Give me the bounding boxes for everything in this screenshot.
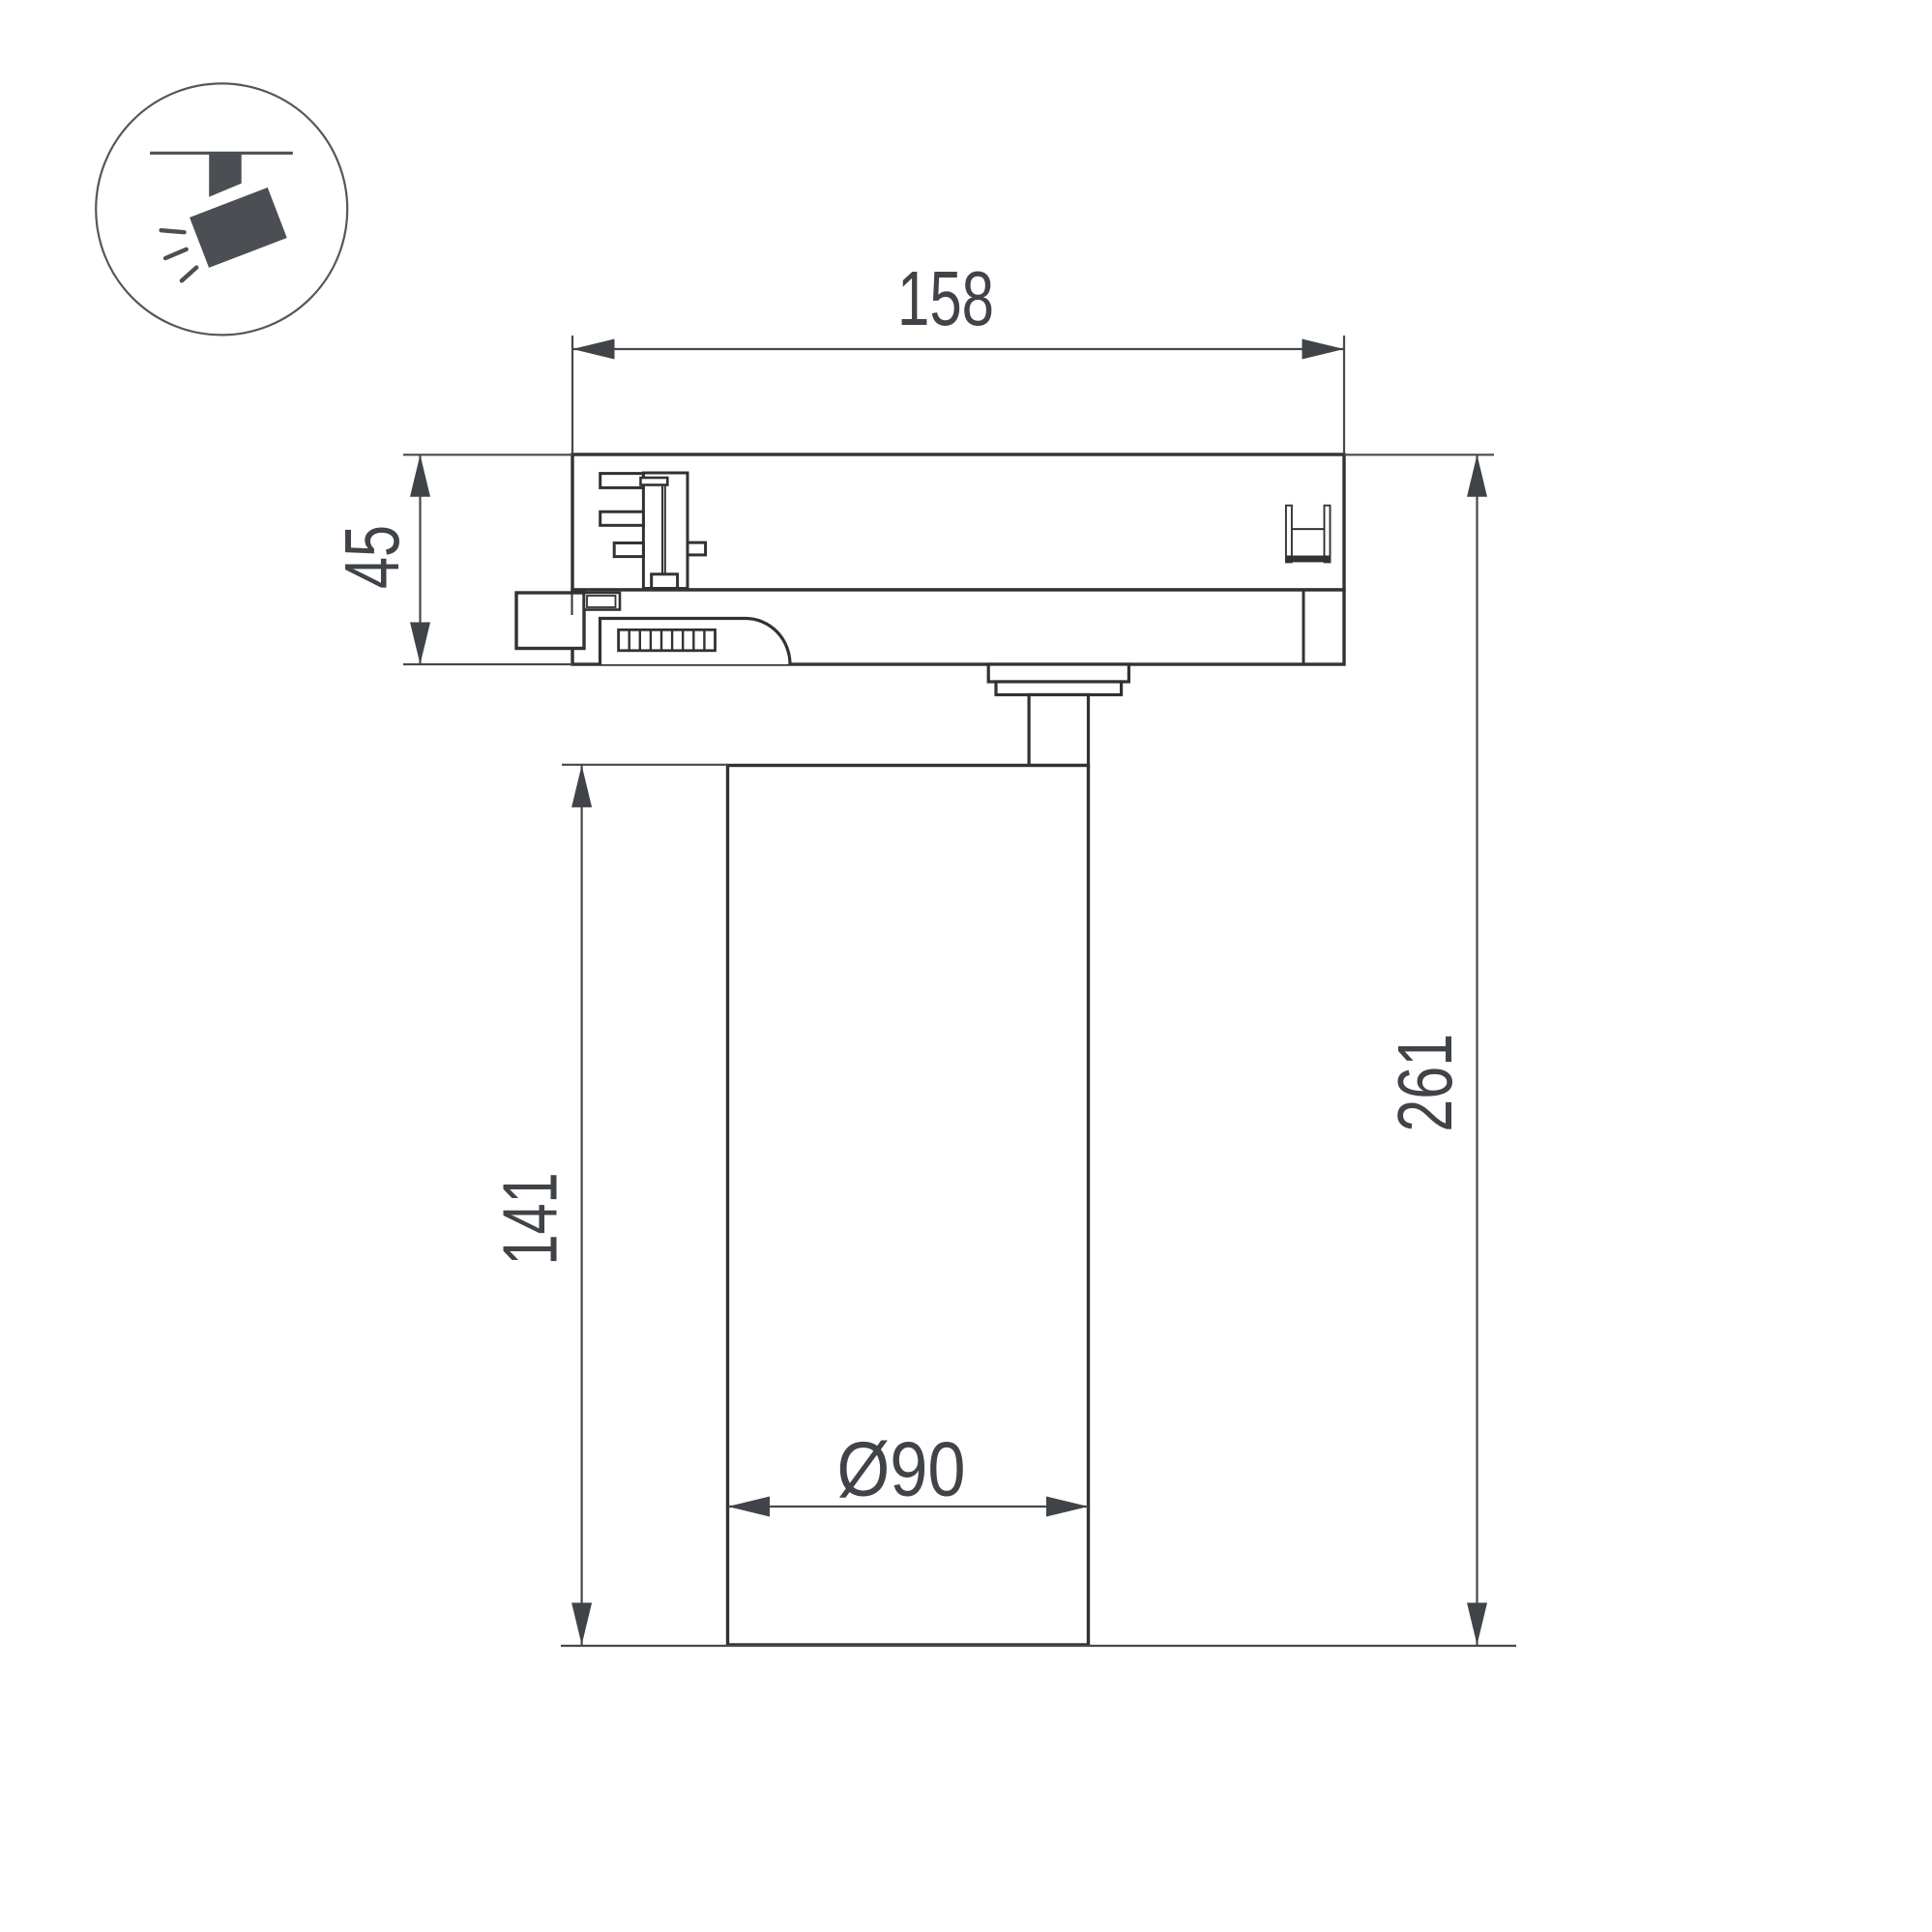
svg-text:141: 141	[487, 1173, 573, 1266]
svg-text:158: 158	[897, 255, 994, 341]
svg-text:Ø90: Ø90	[837, 1426, 966, 1512]
svg-text:45: 45	[329, 525, 415, 589]
svg-text:261: 261	[1382, 1034, 1468, 1132]
